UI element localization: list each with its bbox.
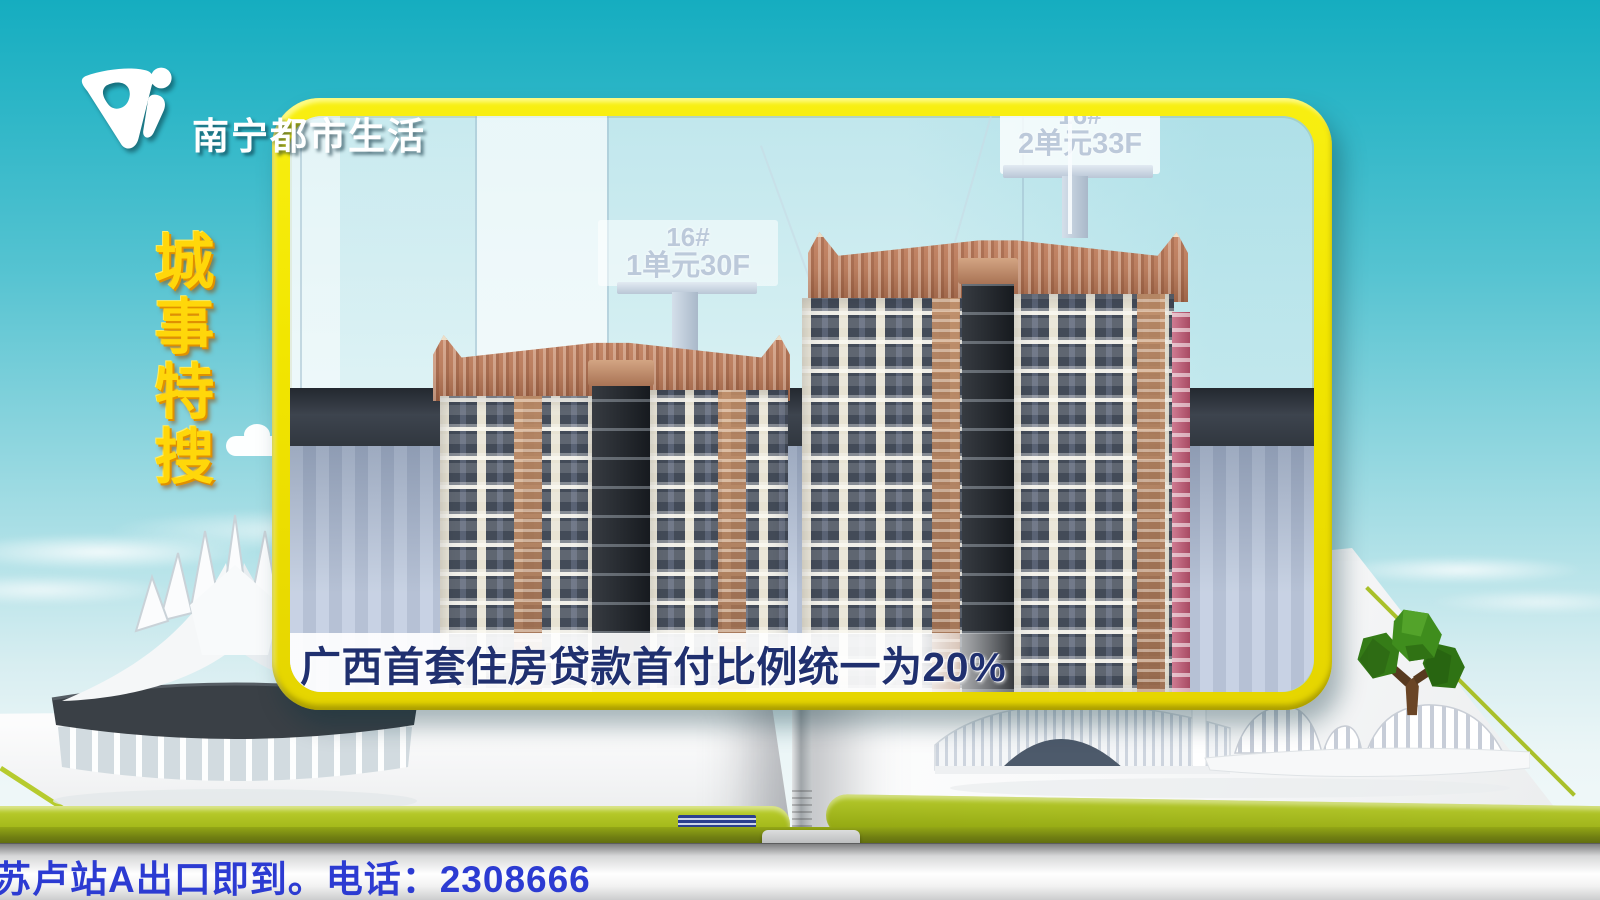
ticker-bar: 苏卢站A出口即到。电话：2308666 [0, 843, 1600, 900]
tv-broadcast-frame: 16# 1单元30F 16# 2单元33F [0, 0, 1600, 900]
tower-right-core [962, 266, 1014, 692]
channel-name: 南宁都市生活 [192, 106, 426, 160]
tv-logo-icon [78, 62, 182, 162]
crane-mast [1068, 116, 1072, 234]
video-frame: 16# 1单元30F 16# 2单元33F [272, 98, 1332, 710]
balcony-column [1137, 294, 1165, 692]
book-spine [792, 706, 812, 834]
tree-icon [1345, 602, 1485, 717]
news-caption-band: 广西首套住房贷款首付比例统一为20% [290, 633, 1030, 692]
news-caption: 广西首套住房贷款首付比例统一为20% [300, 633, 1006, 693]
tower-right-wing-right [1012, 294, 1174, 692]
tower-right-side-edge [1172, 312, 1190, 692]
video-screen: 16# 1单元30F 16# 2单元33F [290, 116, 1314, 692]
unit-sign-front: 16# 1单元30F [598, 220, 778, 286]
unit-sign-front-text: 1单元30F [598, 251, 778, 281]
unit-sign-back-post [1062, 176, 1088, 238]
unit-sign-back-text: 2单元33F [1000, 129, 1160, 159]
unit-sign-front-post [672, 292, 698, 352]
ticker-text: 苏卢站A出口即到。电话：2308666 [0, 849, 591, 900]
program-title-vertical: 城事特搜 [136, 230, 223, 490]
channel-logo: 南宁都市生活 [78, 62, 426, 162]
unit-sign-front-number: 16# [598, 224, 778, 251]
